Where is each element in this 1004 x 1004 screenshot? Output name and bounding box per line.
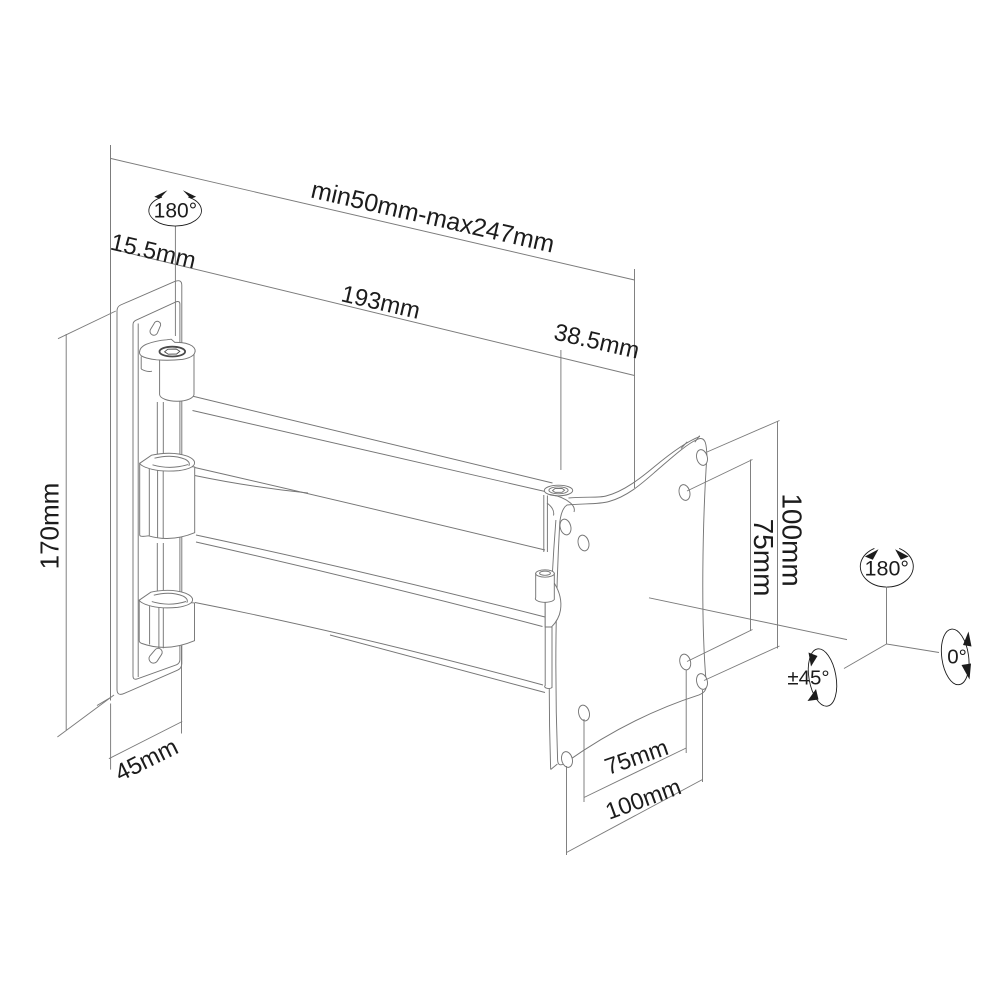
svg-text:180°: 180° [154,200,197,223]
svg-text:100mm: 100mm [777,493,808,586]
svg-text:±45°: ±45° [787,667,829,690]
svg-text:0°: 0° [947,646,967,669]
svg-text:180°: 180° [865,557,909,581]
svg-text:170mm: 170mm [35,483,65,570]
svg-text:75mm: 75mm [748,519,779,597]
